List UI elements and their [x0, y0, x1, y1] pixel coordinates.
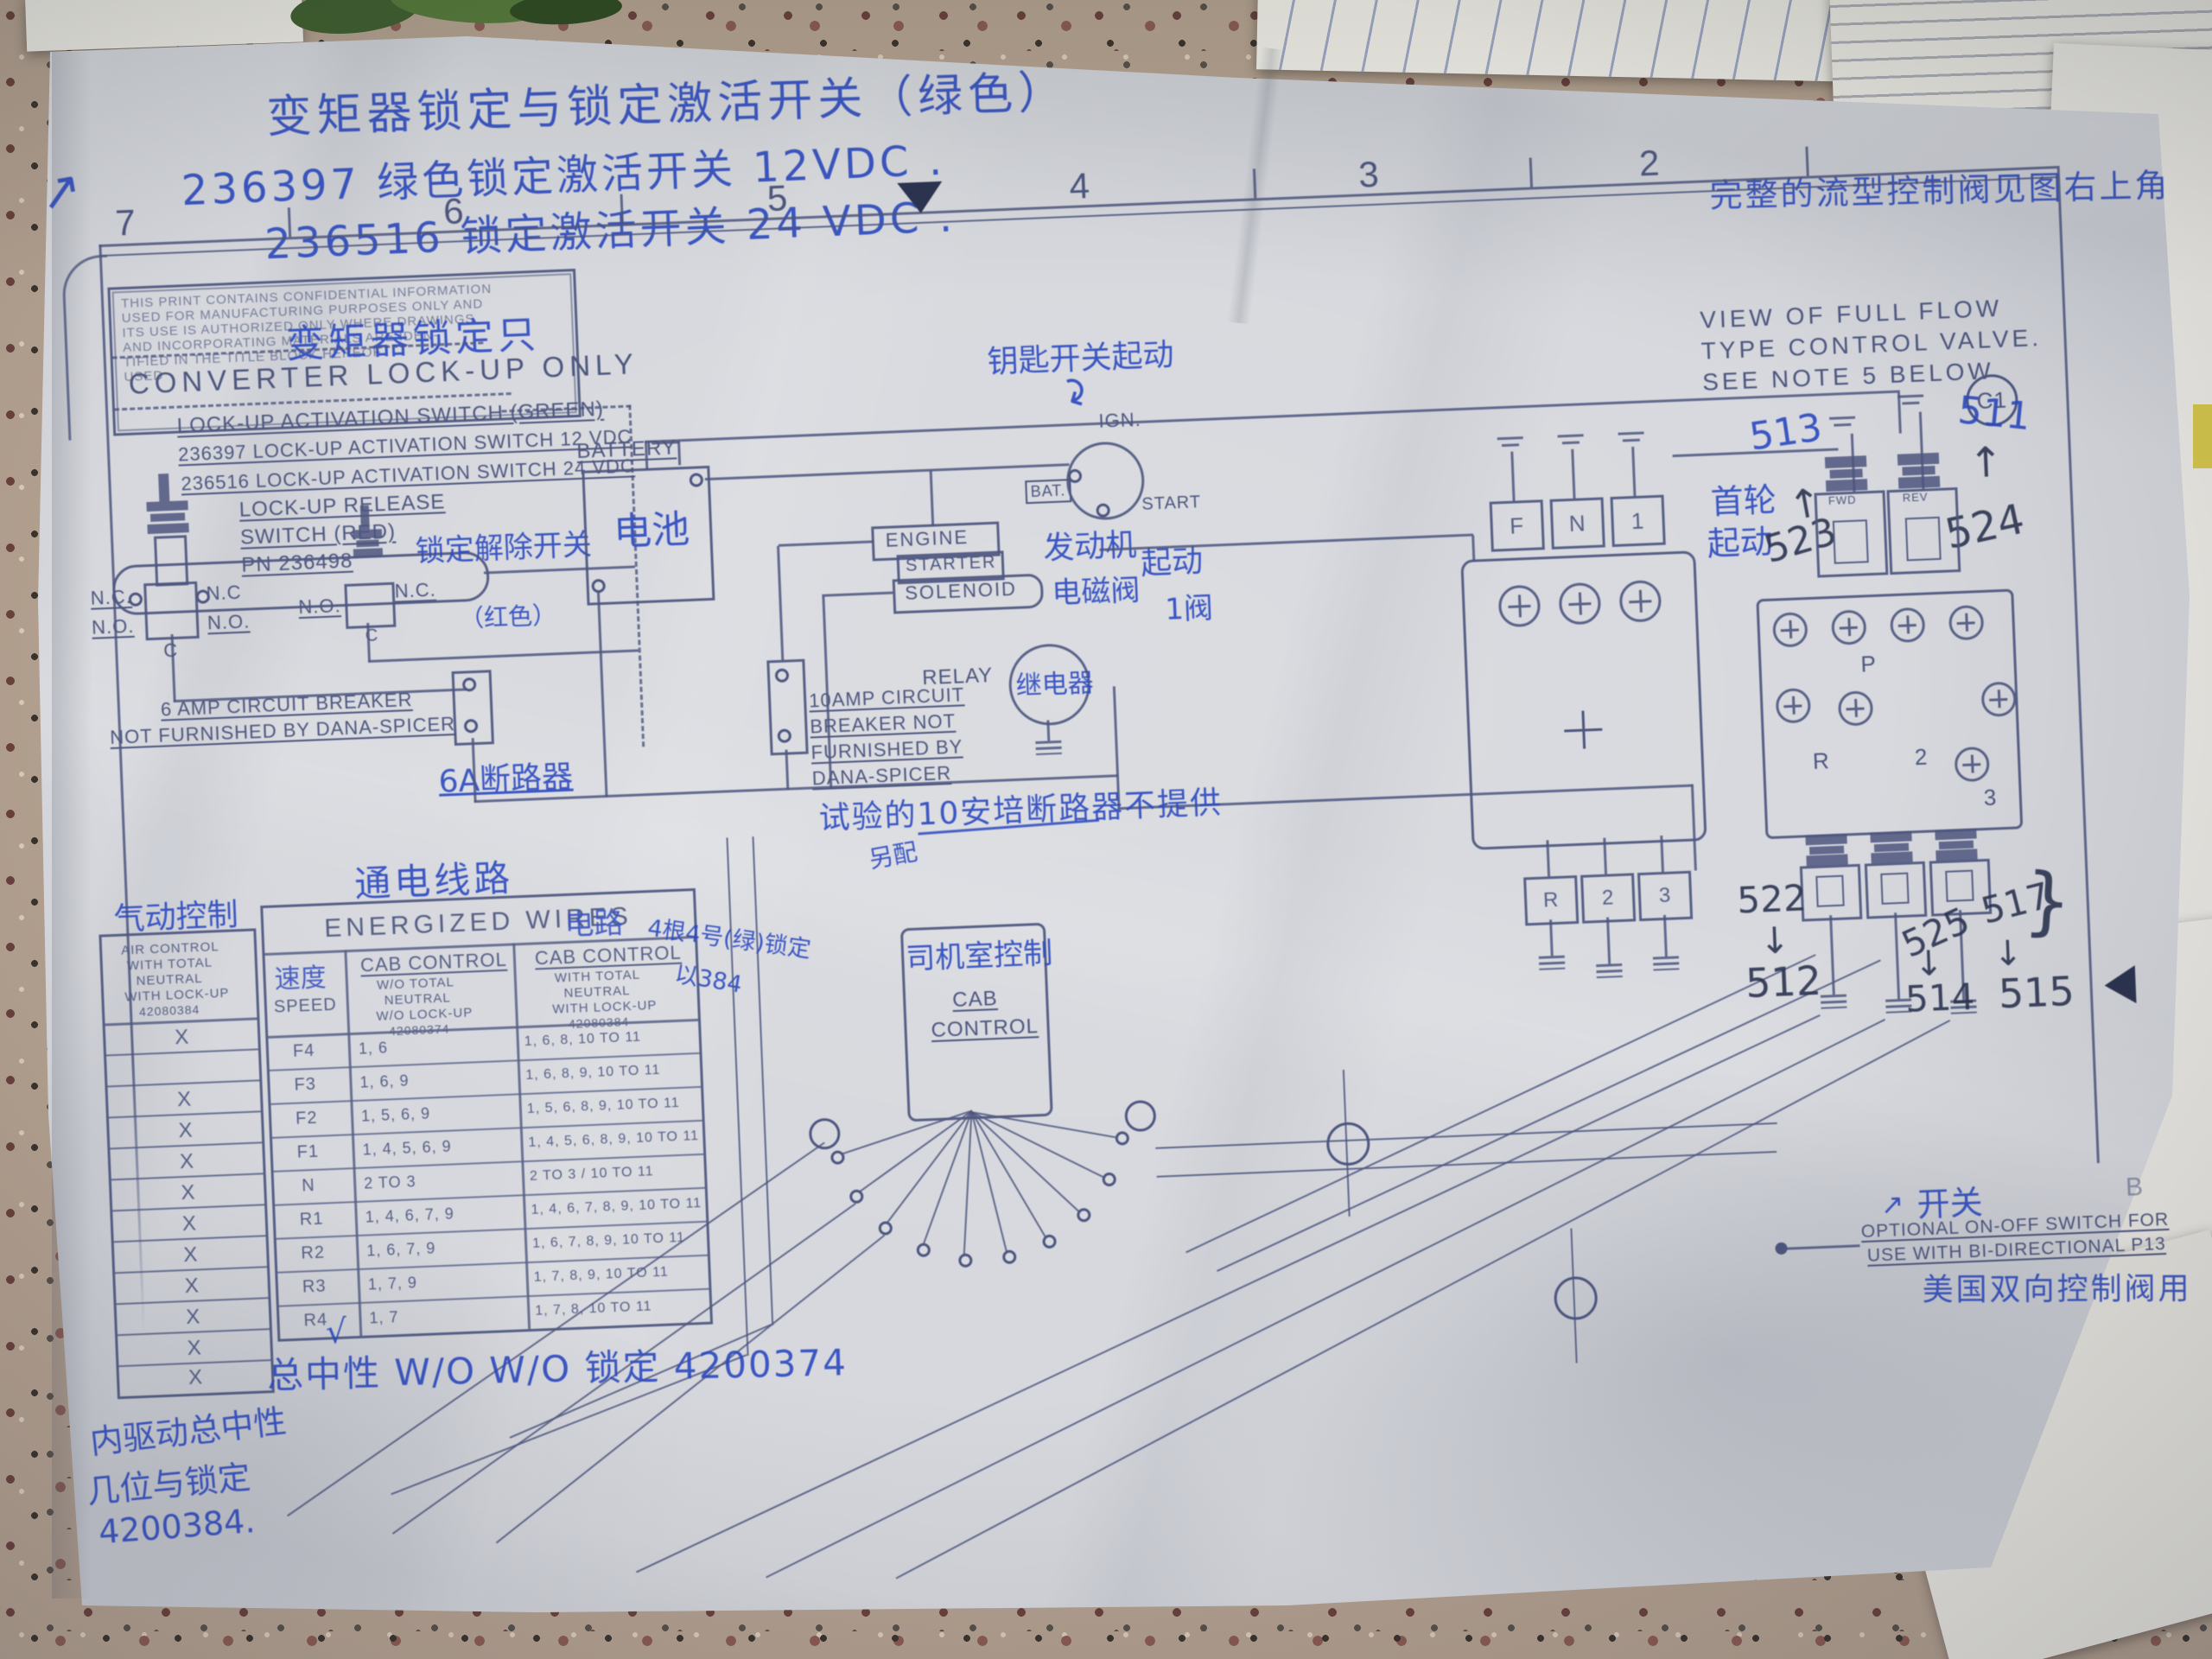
solenoid-fwd-core: [1833, 519, 1869, 564]
wire: [597, 588, 608, 797]
battery-leader: [677, 441, 681, 465]
bar-mark: [1618, 431, 1644, 435]
wire: [884, 1110, 973, 1227]
hw-table-suffix: 电路: [563, 899, 624, 944]
col3-header: CAB CONTROL: [534, 942, 682, 970]
switch-ring: [147, 523, 188, 534]
cab-label-1: CAB: [952, 987, 998, 1013]
hw-511: 511: [1956, 388, 2033, 439]
solenoid-cap: [1870, 830, 1911, 842]
ruler-2: 2: [1638, 142, 1661, 184]
wire: [1549, 919, 1554, 956]
port-2-label: 2: [1914, 744, 1929, 772]
cell-a: 1, 6, 9: [359, 1071, 410, 1091]
connector-circle: [1325, 1122, 1370, 1166]
connector-circle: [1124, 1100, 1156, 1132]
ruler-5: 5: [766, 177, 789, 219]
table-line: [107, 1079, 259, 1087]
cell-b: 1, 6, 8, 10 TO 11: [524, 1030, 641, 1050]
bar-mark: [1834, 423, 1851, 427]
label-nc-left: N.C.: [90, 586, 132, 610]
wire: [705, 463, 1070, 480]
air-control-table: AIR CONTROL WITH TOTAL NEUTRAL WITH LOCK…: [99, 928, 274, 1399]
ruler-triangle-marker: [897, 181, 943, 214]
solenoid-cap: [1935, 828, 1976, 840]
hw-bottom-center: 总中性 W/O W/O 锁定 4200374: [266, 1333, 848, 1399]
cell-a: 2 TO 3: [364, 1173, 416, 1192]
terminal: [917, 1243, 931, 1257]
ignition-ign-label: IGN.: [1098, 409, 1141, 433]
solenoid-cap: [1897, 453, 1939, 466]
cell-speed: R3: [302, 1276, 327, 1297]
bottom-solenoid-core: [1945, 870, 1974, 902]
switch-ring: [150, 512, 185, 522]
hw-release-switch: 锁定解除开关: [415, 520, 593, 569]
leader-dot: [1775, 1243, 1788, 1255]
solenoid-cap: [1809, 846, 1844, 855]
cell-a: 1, 5, 6, 9: [361, 1104, 431, 1125]
cell-speed: F2: [296, 1109, 318, 1129]
label-nc: N.C.: [394, 579, 436, 603]
bar-mark: [1829, 416, 1855, 420]
solenoid-cap: [1902, 466, 1935, 476]
terminal: [878, 1221, 893, 1236]
hw-start: 起动: [1140, 536, 1204, 583]
terminal: [849, 1189, 864, 1204]
wire: [1606, 918, 1611, 964]
cell-speed: F1: [296, 1142, 319, 1163]
starter-label: STARTER: [906, 553, 997, 576]
cell-a: 1, 4, 5, 6, 9: [362, 1138, 452, 1160]
ground-symbol: [1539, 956, 1566, 970]
hw-brace: }: [2022, 856, 2075, 945]
wire: [971, 1111, 1009, 1256]
selector-box-f: F: [1490, 499, 1545, 551]
hw-6a-breaker: 6A断路器: [437, 752, 574, 802]
breaker10-l3: FURNISHED BY: [810, 735, 963, 764]
diagram-content: 变矩器锁定与锁定激活开关（绿色） 236397 绿色锁定激活开关 12VDC .…: [0, 0, 2212, 1659]
photo-scene: 变矩器锁定与锁定激活开关（绿色） 236397 绿色锁定激活开关 12VDC .…: [0, 0, 2212, 1659]
leader-line: [1784, 1244, 1860, 1250]
bar-mark: [1558, 434, 1584, 437]
border-corner-curve: [61, 255, 115, 441]
hw-arrow-ne: ↗: [1880, 1187, 1904, 1221]
wire: [636, 1014, 1821, 1573]
pen-arrow-icon: ↗: [35, 158, 86, 224]
cell-speed: R2: [301, 1243, 325, 1264]
terminal: [830, 1150, 845, 1165]
bar-mark: [1902, 402, 1919, 405]
cell-speed: N: [302, 1176, 315, 1197]
x-row: X: [175, 1026, 190, 1051]
wire: [896, 1020, 1951, 1580]
col-speed-header: SPEED: [274, 995, 338, 1018]
wire: [1663, 915, 1668, 957]
hw-arrow-down: ↓: [1758, 918, 1790, 962]
hw-red-note: （红色）: [459, 596, 557, 634]
connector-circle: [1554, 1275, 1599, 1320]
connector-circle: [809, 1117, 841, 1149]
hw-515: 515: [1998, 968, 2075, 1017]
solenoid-cap: [1826, 479, 1867, 492]
solenoid-label: SOLENOID: [905, 578, 1018, 605]
cell-b: 1, 5, 6, 8, 9, 10 TO 11: [527, 1096, 680, 1117]
wire: [1185, 954, 1816, 1253]
ruler-tick: [1529, 157, 1533, 187]
ruler-tick: [1253, 168, 1256, 198]
cell-a: 1, 4, 6, 7, 9: [365, 1205, 454, 1226]
bar-mark: [1497, 436, 1523, 440]
wire: [1471, 535, 1475, 561]
engine-label: ENGINE: [885, 526, 969, 552]
hw-battery: 电池: [613, 498, 690, 556]
ground-symbol: [1035, 741, 1062, 755]
hw-valve1: 1阀: [1164, 584, 1214, 628]
ruler-3: 3: [1357, 154, 1380, 196]
bar-mark: [1562, 441, 1580, 444]
port-p-label: P: [1860, 651, 1878, 678]
label-nc-right: N.C: [206, 582, 242, 606]
cell-a: 1, 7, 9: [368, 1274, 418, 1294]
switch-ring: [356, 539, 378, 547]
cell-b: 1, 4, 5, 6, 8, 9, 10 TO 11: [528, 1128, 699, 1151]
x-row: X: [183, 1243, 199, 1268]
air-header: WITH LOCK-UP: [124, 986, 230, 1005]
wire: [726, 837, 748, 1356]
hw-cab-control: 司机室控制: [905, 929, 1053, 977]
solenoid-cap: [1829, 468, 1862, 479]
solenoid-cap: [1874, 843, 1909, 853]
note-top-1: 变矩器锁定与锁定激活开关（绿色）: [265, 55, 1069, 145]
terminal: [1002, 1249, 1017, 1264]
terminal: [1102, 1173, 1116, 1187]
bar-mark: [1897, 394, 1923, 397]
x-row: X: [181, 1211, 197, 1236]
hw-engine: 发动机: [1042, 519, 1137, 568]
breaker10-l1: 10AMP CIRCUIT: [809, 683, 965, 712]
release-switch-body: [344, 582, 396, 629]
hw-arrow-down3: ↓: [1993, 933, 2023, 974]
terminal: [958, 1253, 973, 1268]
bottom-solenoid-core: [1880, 873, 1909, 905]
col2-header: CAB CONTROL: [360, 949, 508, 977]
hw-bidirectional: 美国双向控制阀用: [1922, 1263, 2191, 1310]
label-no: N.O.: [298, 594, 341, 619]
solenoid-rev-core: [1905, 517, 1942, 562]
ground-symbol: [1596, 963, 1623, 978]
wire: [1510, 452, 1515, 501]
col3-sub: WITH LOCK-UP: [552, 998, 658, 1017]
ruler-6: 6: [442, 190, 465, 232]
cell-speed: R1: [299, 1210, 323, 1230]
x-row: X: [184, 1274, 200, 1299]
wire: [752, 836, 773, 1325]
x-row: X: [178, 1119, 194, 1144]
port-3-label: 3: [1983, 784, 1998, 811]
cell-a: 1, 6: [359, 1039, 389, 1058]
ignition-bat-label: BAT.: [1025, 479, 1071, 504]
selector-box-2: 2: [1580, 873, 1636, 923]
release-switch-l1: LOCK-UP RELEASE: [238, 490, 446, 523]
wire: [822, 592, 893, 597]
x-row: X: [177, 1088, 193, 1113]
switch-ring: [353, 529, 382, 538]
ruler-4: 4: [1069, 165, 1091, 207]
switch-stem: [360, 505, 370, 530]
wire: [1571, 449, 1575, 499]
air-header: 42080384: [139, 1002, 200, 1019]
cell-a: 1, 6, 7, 9: [366, 1239, 436, 1260]
cell-speed: F4: [293, 1041, 315, 1062]
x-row: X: [180, 1149, 195, 1174]
wire: [930, 471, 935, 526]
wire: [836, 1109, 972, 1156]
hw-514: 514: [1904, 976, 1975, 1020]
solenoid-rev-label: REV: [1903, 490, 1929, 504]
x-row: X: [186, 1305, 201, 1330]
air-header: NEUTRAL: [136, 971, 203, 988]
ruler-tick: [1805, 147, 1808, 176]
cell-b: 1, 6, 8, 9, 10 TO 11: [525, 1063, 661, 1084]
label-no-right: N.O.: [207, 610, 251, 634]
wire: [1155, 1122, 1777, 1149]
hw-solenoid: 电磁阀: [1051, 566, 1141, 612]
selector-box-n: N: [1550, 497, 1605, 549]
terminal: [1077, 1208, 1091, 1223]
hw-arrow-up: ↑: [1967, 438, 2004, 488]
hw-bottom-l1: 内驱动总中性: [87, 1395, 289, 1464]
release-switch-l3: PN 236498: [241, 550, 353, 578]
wire: [1631, 447, 1636, 496]
breaker10-l4: DANA-SPICER: [811, 762, 951, 790]
energized-wires-table: ENERGIZED WIRES 电路 速度 SPEED CAB CONTROL …: [260, 888, 713, 1342]
wire: [785, 750, 789, 790]
port-r-label: R: [1812, 747, 1830, 775]
wire: [779, 540, 874, 546]
cab-label-2: CONTROL: [931, 1014, 1039, 1043]
bar-mark: [1502, 443, 1519, 447]
border-triangle-marker: [2104, 965, 2137, 1004]
switch-ring: [146, 500, 188, 512]
cell-b: 1, 4, 6, 7, 8, 9, 10 TO 11: [531, 1196, 702, 1218]
wire: [368, 649, 639, 663]
ground-symbol: [1821, 995, 1847, 1009]
switch-ring: [353, 548, 383, 557]
ruler-7: 7: [114, 201, 137, 244]
x-row: X: [187, 1336, 202, 1361]
solenoid-fwd-label: FWD: [1828, 493, 1857, 507]
cell-speed: F3: [294, 1075, 316, 1096]
selector-box-1: 1: [1610, 495, 1665, 547]
selector-box-r: R: [1523, 875, 1579, 925]
wire: [1217, 959, 1881, 1272]
bar-mark: [1623, 439, 1640, 442]
cell-b: 1, 7, 8, 10 TO 11: [535, 1299, 652, 1319]
cell-b: 1, 7, 8, 9, 10 TO 11: [533, 1265, 669, 1286]
hw-512: 512: [1745, 957, 1822, 1007]
wire-top-bus: [645, 391, 1897, 443]
hw-10a-note2: 另配: [866, 833, 919, 875]
breaker10-l2: BREAKER NOT: [810, 710, 957, 739]
x-row: X: [188, 1365, 204, 1390]
ground-symbol: [1653, 956, 1680, 970]
b-marker: B: [2125, 1173, 2144, 1203]
x-row: X: [181, 1180, 196, 1205]
wire: [777, 546, 784, 660]
label-no-left: N.O.: [92, 615, 135, 639]
solenoid-cap: [1825, 455, 1866, 468]
ignition-start-label: START: [1141, 493, 1202, 515]
col3-sub: NEUTRAL: [563, 983, 631, 1001]
cell-a: 1, 7: [369, 1308, 399, 1327]
terminal: [1042, 1235, 1057, 1249]
selector-box-3: 3: [1637, 871, 1693, 921]
hw-522: 522: [1736, 876, 1807, 921]
solenoid-cap: [1939, 841, 1974, 850]
cell-b: 1, 6, 7, 8, 9, 10 TO 11: [532, 1230, 685, 1252]
bottom-solenoid-core: [1815, 875, 1844, 907]
solenoid-cap: [1805, 833, 1847, 845]
terminal: [1116, 1131, 1130, 1146]
hw-relay: 继电器: [1015, 661, 1095, 702]
hw-speed: 速度: [274, 956, 327, 995]
solenoid-cap: [1898, 476, 1940, 489]
cell-b: 2 TO 3 / 10 TO 11: [530, 1164, 654, 1185]
switch-stem: [158, 474, 169, 501]
center-cross-icon: [1563, 710, 1603, 750]
col2-sub: W/O LOCK-UP: [376, 1005, 473, 1023]
col2-sub: NEUTRAL: [384, 990, 451, 1007]
